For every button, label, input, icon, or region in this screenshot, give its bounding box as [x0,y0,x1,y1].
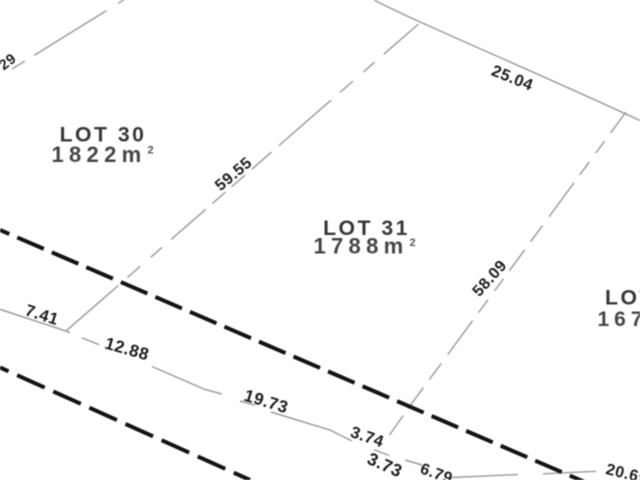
svg-text:2: 2 [148,145,154,157]
svg-text:2: 2 [410,237,416,249]
svg-text:1788m: 1788m [313,234,408,259]
svg-text:1671m: 1671m [598,308,640,331]
svg-text:LOT 32: LOT 32 [605,286,640,309]
svg-text:1822m: 1822m [51,142,146,167]
